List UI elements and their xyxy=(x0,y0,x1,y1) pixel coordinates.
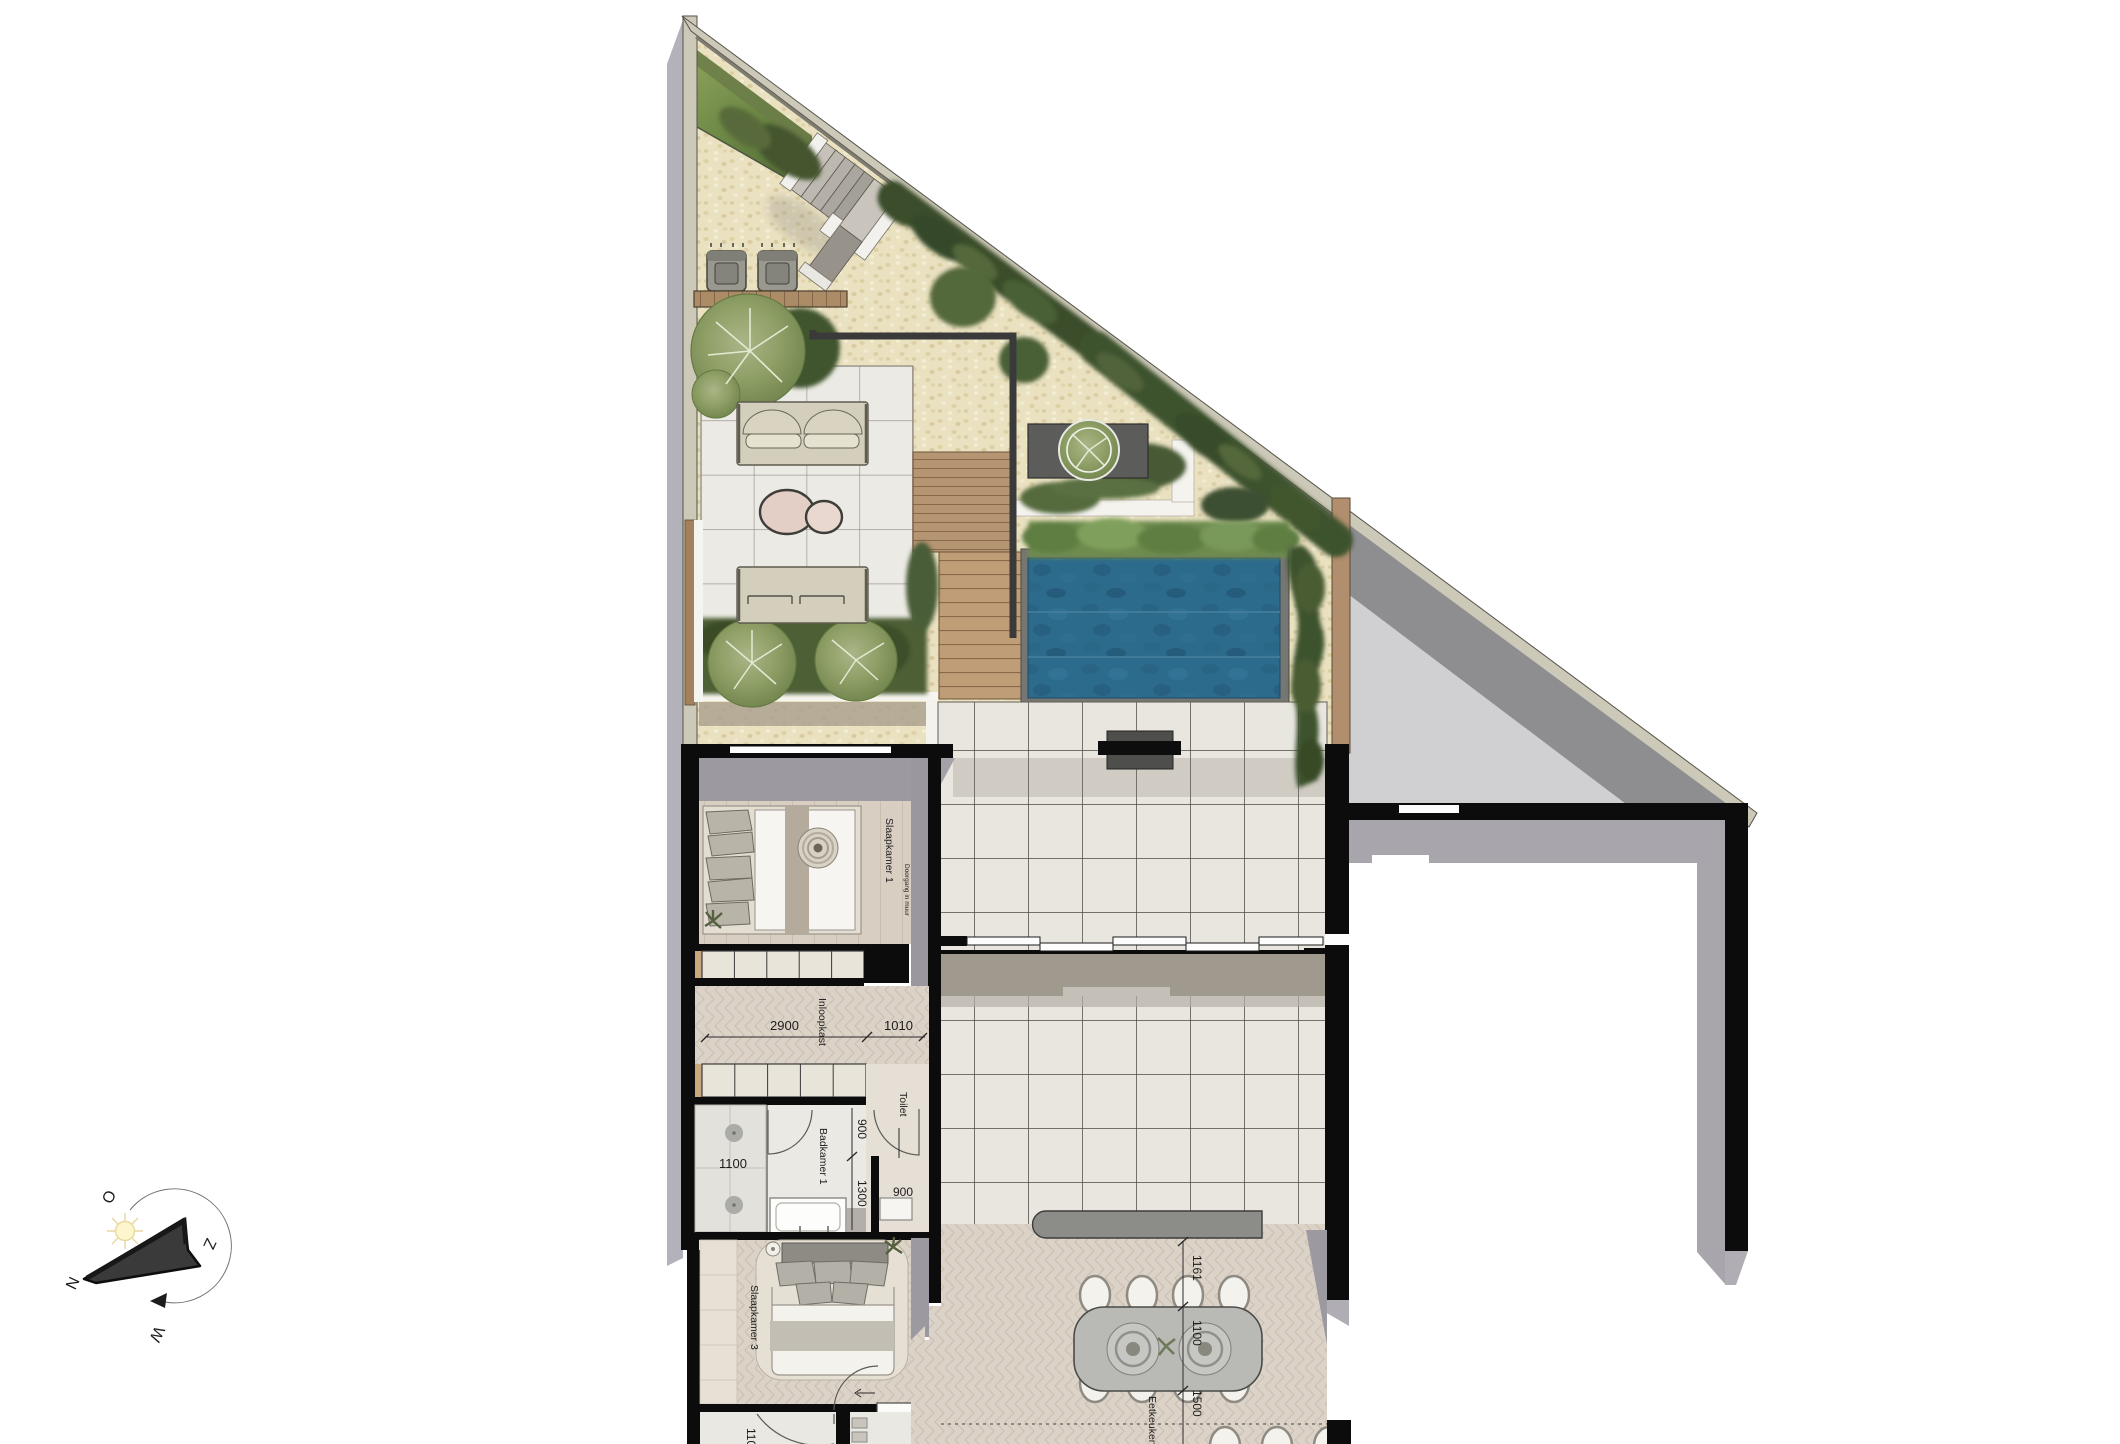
svg-text:1100: 1100 xyxy=(1190,1320,1204,1346)
svg-text:1100: 1100 xyxy=(744,1428,758,1444)
svg-text:1500: 1500 xyxy=(1190,1390,1204,1417)
svg-text:Slaapkamer 1: Slaapkamer 1 xyxy=(883,818,895,883)
svg-text:Eetkeuken: Eetkeuken xyxy=(1146,1396,1158,1444)
svg-text:1100: 1100 xyxy=(719,1156,747,1171)
svg-text:1161: 1161 xyxy=(1190,1255,1204,1281)
svg-text:1010: 1010 xyxy=(884,1018,913,1033)
svg-text:2900: 2900 xyxy=(770,1018,799,1033)
svg-text:Toilet: Toilet xyxy=(897,1092,909,1117)
svg-text:900: 900 xyxy=(855,1119,869,1139)
svg-text:1300: 1300 xyxy=(855,1180,869,1207)
svg-text:Doorgang in muur: Doorgang in muur xyxy=(903,864,910,917)
svg-text:Inloopkast: Inloopkast xyxy=(816,998,828,1046)
svg-text:900: 900 xyxy=(893,1185,913,1199)
svg-text:Slaapkamer 3: Slaapkamer 3 xyxy=(748,1285,760,1350)
svg-text:Badkamer 1: Badkamer 1 xyxy=(817,1128,829,1185)
